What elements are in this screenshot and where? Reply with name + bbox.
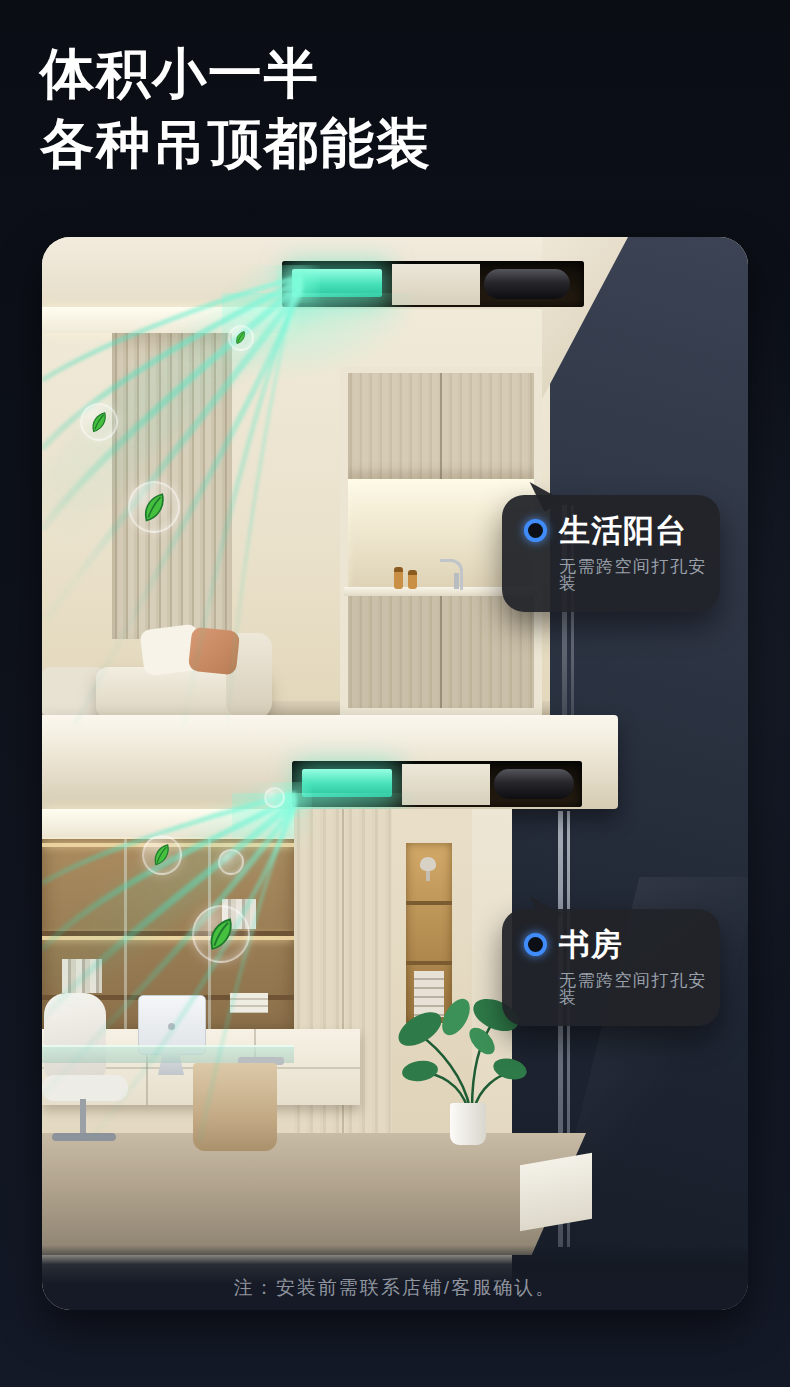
table-lamp-stem [426,871,430,881]
window-sill [520,1153,592,1232]
callout-subtitle: 无需跨空间打孔安装 [559,558,720,592]
leaf-bubble [142,835,182,875]
bottle [408,570,417,589]
callout-study: 书房 无需跨空间打孔安装 [502,909,720,1026]
office-chair-seat [42,1075,128,1101]
page-background: { "header": { "title_line1": "体积小一半", "t… [0,0,790,1387]
desk-pedestal [193,1063,277,1151]
leaf-bubble [218,849,244,875]
leaf-bubble [192,905,250,963]
leaf-icon [137,490,172,525]
office-chair-stem [80,1099,86,1135]
niche-board [406,901,452,905]
note-text: 注：安装前需联系店铺/客服确认。 [42,1275,748,1301]
plant-pot [450,1103,486,1145]
callout-title-row: 书房 [502,929,720,960]
callout-title: 书房 [559,929,623,960]
cabinet-door-split [440,373,442,479]
blue-ring-dot-icon [524,933,547,956]
books [230,993,268,1013]
title-block: 体积小一半 各种吊顶都能装 [40,38,432,178]
imac-logo-icon [168,1023,175,1030]
leaf-bubble [80,403,118,441]
books [62,959,102,993]
leaf-icon [149,842,175,868]
faucet-icon [440,559,463,590]
leaf-icon [87,410,112,435]
shelf-board [42,931,294,936]
cabinet-door-split [440,596,442,708]
page-title-line-2: 各种吊顶都能装 [40,108,432,178]
kitchen-lower-cabinet [348,596,534,708]
shelf-light [42,936,294,940]
faucet-stem [454,573,459,589]
scene-card: 注：安装前需联系店铺/客服确认。 生活阳台 无需跨空间打孔安装 书房 无需跨空间… [42,237,748,1310]
leaf-bubble [228,325,254,351]
glass-mullion [124,839,127,1033]
unit-duct [484,269,570,299]
office-chair-base [52,1133,116,1141]
blue-ring-dot-icon [524,519,547,542]
kitchen-upper-cabinet [348,373,534,479]
callout-subtitle: 无需跨空间打孔安装 [559,972,720,1006]
study-floor [42,1133,586,1255]
table-lamp-icon [420,857,436,871]
callout-title-row: 生活阳台 [502,515,720,546]
bottle [394,567,403,589]
sofa-left-seat [42,667,104,715]
unit-duct [494,769,574,799]
slat-panel [112,333,232,639]
page-title-line-1: 体积小一半 [40,38,432,108]
sofa-pillow-tan [188,627,240,676]
callout-title: 生活阳台 [559,515,687,546]
niche-board [406,961,452,965]
office-chair-back [44,993,106,1081]
leaf-bubble [128,481,180,533]
leaf-bubble [264,787,285,808]
callout-balcony: 生活阳台 无需跨空间打孔安装 [502,495,720,612]
leaf-icon [201,914,240,953]
leaf-icon [233,330,249,346]
